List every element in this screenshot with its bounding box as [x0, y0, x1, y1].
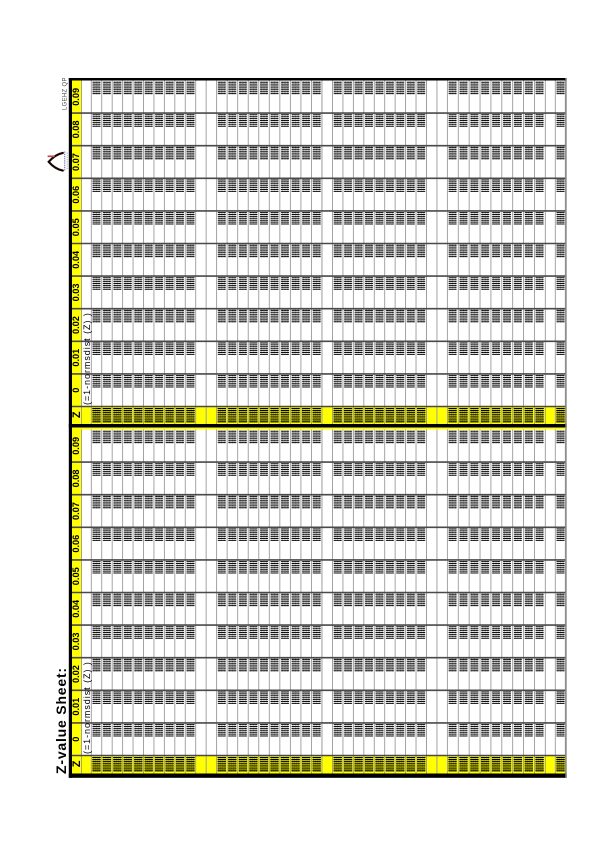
svg-text:0.09: 0.09 — [71, 88, 81, 106]
svg-text:Z-value Sheet:: Z-value Sheet: — [53, 667, 69, 774]
svg-text:0.05: 0.05 — [71, 218, 81, 236]
svg-text:(=1-normsdist (Z) ): (=1-normsdist (Z) ) — [82, 661, 92, 754]
svg-text:0.06: 0.06 — [71, 186, 81, 204]
svg-text:0.08: 0.08 — [71, 470, 81, 488]
svg-text:LGEHZ QP: LGEHZ QP — [62, 77, 68, 110]
svg-text:0.01: 0.01 — [71, 349, 81, 367]
svg-text:0.04: 0.04 — [71, 250, 81, 269]
svg-text:0.08: 0.08 — [71, 121, 81, 139]
svg-text:0.07: 0.07 — [71, 153, 81, 171]
svg-text:0.07: 0.07 — [71, 502, 81, 520]
svg-text:0: 0 — [71, 388, 81, 393]
svg-text:0.02: 0.02 — [71, 665, 81, 683]
svg-text:0.05: 0.05 — [71, 567, 81, 585]
svg-text:0.06: 0.06 — [71, 535, 81, 553]
svg-text:Z: Z — [71, 760, 83, 767]
svg-text:(=1-normsdist (Z) ): (=1-normsdist (Z) ) — [82, 312, 92, 405]
svg-text:0.01: 0.01 — [71, 698, 81, 716]
svg-text:0.09: 0.09 — [71, 437, 81, 455]
svg-text:0.04: 0.04 — [71, 599, 81, 618]
svg-text:0.03: 0.03 — [71, 633, 81, 651]
svg-text:0: 0 — [71, 737, 81, 742]
svg-text:0.03: 0.03 — [71, 284, 81, 302]
svg-text:0.02: 0.02 — [71, 316, 81, 334]
svg-text:Z: Z — [71, 411, 83, 418]
